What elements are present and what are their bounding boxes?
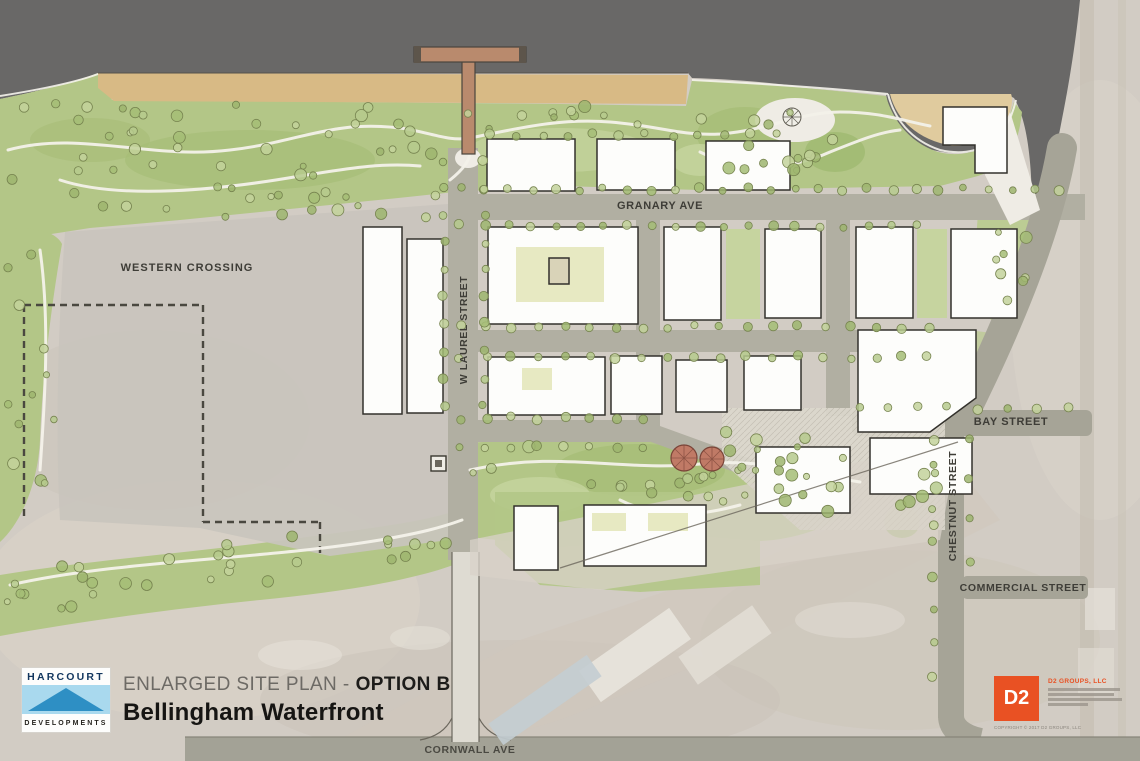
harcourt-logo-subname: DEVELOPMENTS (22, 714, 110, 732)
firm-address-line (1048, 698, 1122, 701)
laurel-south-road (452, 552, 479, 742)
street-label-w-laurel-street: W LAUREL STREET (458, 276, 470, 385)
street-label-cornwall-ave: CORNWALL AVE (424, 744, 515, 756)
harcourt-developments-logo: HARCOURT DEVELOPMENTS (22, 668, 110, 732)
pocket-park (726, 229, 760, 319)
plan-title-line: ENLARGED SITE PLAN -OPTION B (123, 674, 451, 696)
firm-company-name: D2 GROUPS, LLC (1048, 678, 1122, 685)
area-label-western-crossing: WESTERN CROSSING (121, 262, 254, 274)
plan-type-label: ENLARGED SITE PLAN - (123, 674, 350, 695)
pocket-park (917, 229, 947, 318)
granary-ave-road (450, 194, 1085, 220)
firm-address-line (1048, 693, 1114, 696)
firm-address-line (1048, 703, 1088, 706)
street-label-bay-street: BAY STREET (974, 416, 1048, 428)
street-label-commercial-street: COMMERCIAL STREET (960, 582, 1087, 594)
project-title: Bellingham Waterfront (123, 699, 451, 727)
title-block: HARCOURT DEVELOPMENTS ENLARGED SITE PLAN… (22, 668, 451, 732)
courtyard-pavilion (549, 258, 569, 284)
d2-logo: D2 (994, 676, 1039, 721)
firm-block: D2 D2 GROUPS, LLC COPYRIGHT © 2017 D2 GR… (994, 676, 1140, 730)
harcourt-triangle-icon (22, 685, 110, 714)
site-plan-canvas: WESTERN CROSSING GRANARY AVE W LAUREL ST… (0, 0, 1140, 761)
cornwall-ave-road (185, 737, 1140, 761)
street-label-chestnut-street: CHESTNUT STREET (947, 451, 959, 562)
copyright-line: COPYRIGHT © 2017 D2 GROUPS, LLC (994, 725, 1140, 730)
firm-address-line (1048, 688, 1120, 691)
site-plan-drawing (0, 0, 1140, 761)
harcourt-logo-name: HARCOURT (22, 668, 110, 685)
plan-option-label: OPTION B (356, 674, 451, 695)
street-label-granary-ave: GRANARY AVE (617, 200, 703, 212)
